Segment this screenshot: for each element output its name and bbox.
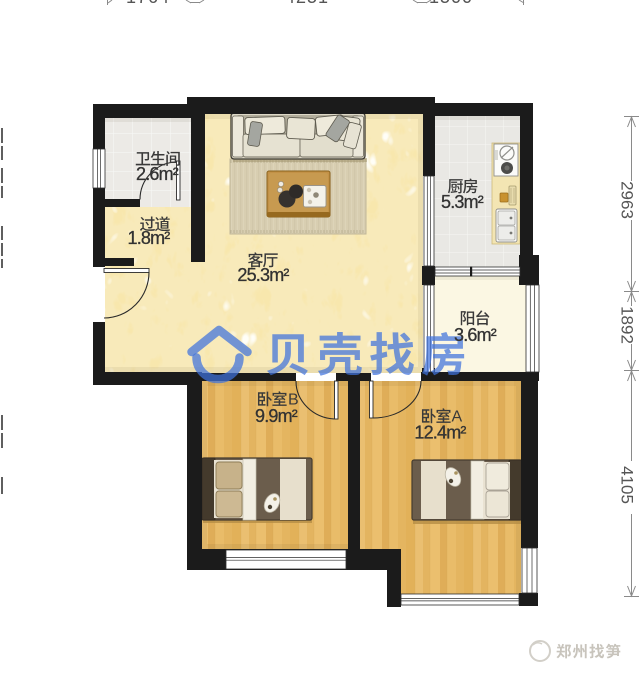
svg-text:1764: 1764	[126, 0, 170, 7]
svg-text:12.4m²: 12.4m²	[414, 423, 466, 443]
svg-text:1500: 1500	[429, 0, 473, 7]
svg-text:3.6m²: 3.6m²	[454, 325, 497, 345]
svg-text:2963: 2963	[618, 181, 637, 219]
svg-text:1.8m²: 1.8m²	[127, 228, 170, 248]
svg-text:25.3m²: 25.3m²	[237, 265, 289, 285]
svg-text:1892: 1892	[618, 306, 637, 344]
svg-text:5.3m²: 5.3m²	[441, 192, 484, 212]
svg-text:9.9m²: 9.9m²	[255, 406, 298, 426]
svg-text:4251: 4251	[285, 0, 329, 7]
svg-text:4105: 4105	[618, 466, 637, 504]
svg-text:2.6m²: 2.6m²	[136, 164, 179, 184]
